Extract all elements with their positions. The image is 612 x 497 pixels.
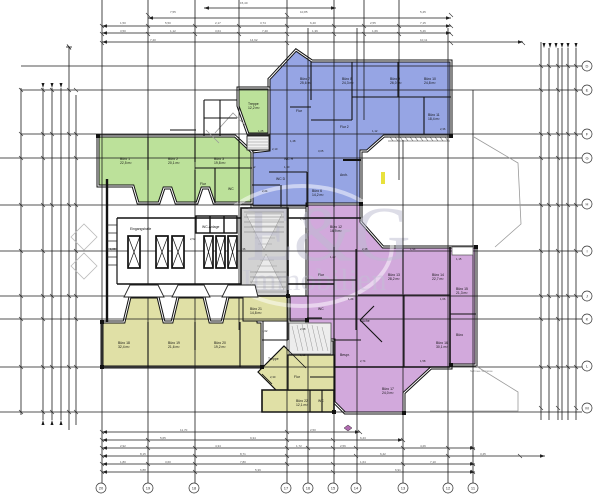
svg-text:2,24: 2,24 (262, 189, 268, 193)
svg-text:1,36: 1,36 (240, 247, 246, 251)
svg-text:1,25: 1,25 (258, 129, 264, 133)
svg-text:16: 16 (306, 486, 311, 491)
svg-text:1,12: 1,12 (170, 29, 176, 33)
svg-text:4,26: 4,26 (420, 444, 426, 448)
svg-text:2,36: 2,36 (440, 127, 446, 131)
svg-text:Schnee-Terrasse: Schnee-Terrasse (470, 369, 493, 373)
svg-text:17: 17 (284, 486, 289, 491)
svg-text:1,58: 1,58 (420, 359, 426, 363)
svg-text:1,08: 1,08 (110, 247, 116, 251)
svg-text:3,60: 3,60 (165, 460, 171, 464)
svg-text:2,10: 2,10 (272, 147, 278, 151)
svg-text:7,80: 7,80 (240, 460, 246, 464)
svg-text:14,2 m²: 14,2 m² (312, 193, 324, 197)
svg-text:1,80: 1,80 (120, 460, 126, 464)
svg-text:1,22: 1,22 (330, 255, 336, 259)
svg-text:1,12: 1,12 (372, 129, 378, 133)
svg-text:G: G (585, 156, 588, 161)
svg-text:1,48: 1,48 (290, 139, 296, 143)
svg-text:32,4 m²: 32,4 m² (118, 345, 130, 349)
svg-text:2,56: 2,56 (340, 444, 346, 448)
svg-text:3,64: 3,64 (215, 29, 221, 33)
svg-text:Flur: Flur (294, 375, 301, 379)
svg-text:2,30: 2,30 (270, 375, 276, 379)
svg-text:19: 19 (146, 486, 151, 491)
svg-text:26,0 m²: 26,0 m² (390, 81, 402, 85)
svg-text:2,48: 2,48 (362, 247, 368, 251)
svg-text:WC H: WC H (284, 157, 294, 161)
svg-text:20,1 m²: 20,1 m² (168, 161, 180, 165)
svg-text:14: 14 (354, 486, 359, 491)
svg-text:16,9 m²: 16,9 m² (330, 229, 342, 233)
svg-text:1,66: 1,66 (372, 29, 378, 33)
svg-text:13: 13 (401, 486, 406, 491)
svg-text:6,88: 6,88 (140, 468, 146, 472)
svg-text:Treppe: Treppe (268, 357, 279, 361)
svg-text:Büro: Büro (456, 333, 463, 337)
svg-text:19,8 m²: 19,8 m² (214, 161, 226, 165)
svg-text:21,6 m²: 21,6 m² (168, 345, 180, 349)
svg-text:14,92: 14,92 (250, 38, 258, 42)
svg-text:15: 15 (331, 486, 336, 491)
svg-text:10,11: 10,11 (420, 38, 428, 42)
svg-text:10,85: 10,85 (300, 10, 308, 14)
svg-text:2,52: 2,52 (190, 237, 196, 241)
svg-text:Arch.: Arch. (340, 173, 348, 177)
svg-text:1,66: 1,66 (440, 297, 446, 301)
svg-text:1,52: 1,52 (250, 165, 256, 169)
svg-text:1,46: 1,46 (300, 217, 306, 221)
svg-text:22,7 m²: 22,7 m² (432, 277, 444, 281)
svg-text:7,15: 7,15 (420, 21, 426, 25)
svg-text:24,8 m²: 24,8 m² (424, 81, 436, 85)
svg-text:24,0 m²: 24,0 m² (382, 391, 394, 395)
svg-text:22,5 m²: 22,5 m² (120, 161, 132, 165)
svg-text:Flur 2: Flur 2 (340, 125, 349, 129)
svg-text:2,50: 2,50 (310, 428, 316, 432)
svg-text:Bespr.: Bespr. (340, 353, 350, 357)
svg-text:20: 20 (99, 486, 104, 491)
svg-text:I: I (586, 249, 587, 254)
svg-text:3,05: 3,05 (318, 149, 324, 153)
svg-text:WC-Anlage: WC-Anlage (202, 225, 219, 229)
svg-text:7,55: 7,55 (170, 10, 176, 14)
svg-text:9,34: 9,34 (250, 436, 256, 440)
svg-text:1,24: 1,24 (348, 297, 354, 301)
svg-text:1,64: 1,64 (360, 460, 366, 464)
svg-text:14,8 m²: 14,8 m² (250, 311, 262, 315)
svg-text:2,17: 2,17 (215, 21, 221, 25)
svg-text:WC: WC (318, 307, 324, 311)
svg-text:2,55: 2,55 (370, 21, 376, 25)
svg-text:6,43: 6,43 (360, 436, 366, 440)
svg-text:4,34: 4,34 (215, 444, 221, 448)
svg-text:J: J (586, 294, 588, 299)
svg-text:K: K (586, 317, 589, 322)
svg-text:25,6 m²: 25,6 m² (300, 81, 312, 85)
svg-text:7,40: 7,40 (150, 38, 156, 42)
svg-text:3,50: 3,50 (120, 29, 126, 33)
svg-text:30,1 m²: 30,1 m² (436, 345, 448, 349)
svg-text:1,62: 1,62 (262, 329, 268, 333)
svg-text:19,2 m²: 19,2 m² (214, 345, 226, 349)
svg-text:24,3 m²: 24,3 m² (342, 81, 354, 85)
svg-text:D: D (586, 64, 589, 69)
svg-text:1,94: 1,94 (410, 247, 416, 251)
svg-text:5,45: 5,45 (420, 10, 426, 14)
svg-text:7,10: 7,10 (430, 460, 436, 464)
svg-text:28,2 m²: 28,2 m² (388, 277, 400, 281)
svg-text:18: 18 (192, 486, 197, 491)
svg-text:2,74: 2,74 (360, 359, 366, 363)
svg-text:5,39: 5,39 (255, 468, 261, 472)
svg-text:Flur: Flur (296, 109, 303, 113)
svg-text:2,92: 2,92 (120, 444, 126, 448)
svg-text:3,74: 3,74 (260, 21, 266, 25)
svg-text:8,71: 8,71 (240, 452, 246, 456)
svg-text:12,2 m²: 12,2 m² (248, 106, 260, 110)
svg-text:15,40: 15,40 (240, 1, 248, 5)
svg-text:1,36: 1,36 (312, 29, 318, 33)
svg-text:3,45: 3,45 (480, 452, 486, 456)
svg-text:5,46: 5,46 (420, 29, 426, 33)
svg-text:WC D: WC D (276, 177, 286, 181)
svg-text:WC: WC (318, 399, 324, 403)
svg-text:M: M (585, 406, 588, 411)
svg-text:Küche: Küche (360, 319, 370, 323)
svg-text:H: H (586, 202, 589, 207)
svg-text:6,40: 6,40 (310, 21, 316, 25)
svg-text:11,70: 11,70 (180, 428, 188, 432)
svg-text:18,4 m²: 18,4 m² (428, 117, 440, 121)
svg-text:12,1 m²: 12,1 m² (296, 403, 308, 407)
svg-text:6,42: 6,42 (380, 452, 386, 456)
svg-text:Eingangshalle: Eingangshalle (130, 227, 151, 231)
svg-text:8,15: 8,15 (140, 452, 146, 456)
svg-text:Flur: Flur (200, 182, 207, 186)
svg-text:1,50: 1,50 (120, 21, 126, 25)
svg-text:7,40: 7,40 (262, 29, 268, 33)
svg-text:6,91: 6,91 (395, 468, 401, 472)
svg-text:12: 12 (446, 486, 451, 491)
svg-text:Flur: Flur (318, 273, 325, 277)
svg-text:1,72: 1,72 (296, 444, 302, 448)
svg-text:5,65: 5,65 (160, 436, 166, 440)
svg-text:2,08: 2,08 (300, 327, 306, 331)
svg-text:E: E (586, 88, 589, 93)
svg-text:1,80: 1,80 (284, 165, 290, 169)
svg-text:21,3 m²: 21,3 m² (456, 291, 468, 295)
svg-text:5,50: 5,50 (165, 21, 171, 25)
svg-text:1,15: 1,15 (300, 353, 306, 357)
svg-text:WC: WC (228, 187, 234, 191)
svg-text:1,15: 1,15 (456, 257, 462, 261)
